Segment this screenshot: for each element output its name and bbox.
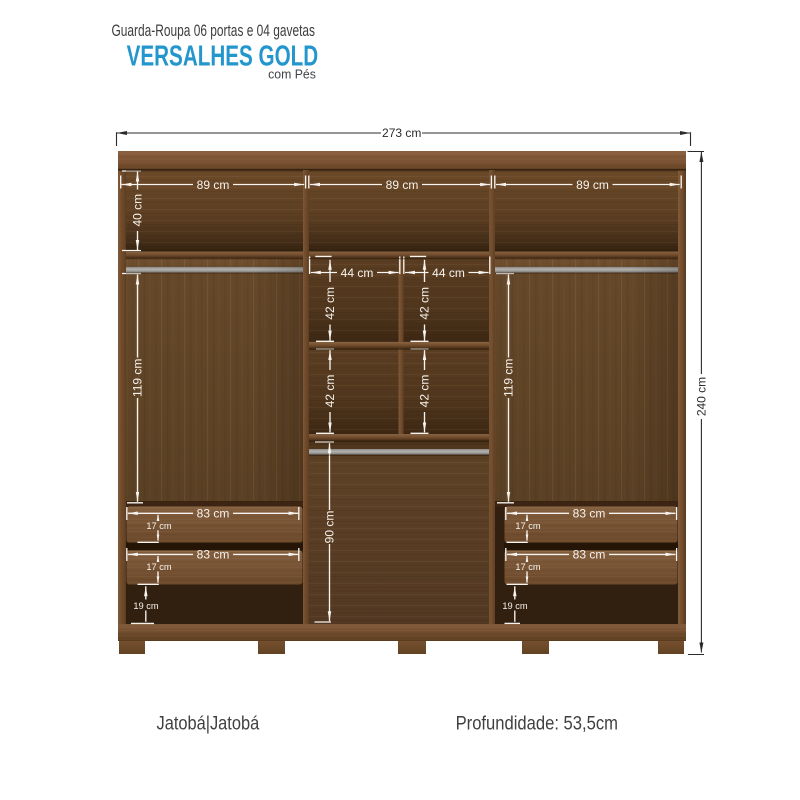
svg-text:42 cm: 42 cm [323, 287, 337, 320]
svg-text:42 cm: 42 cm [418, 375, 432, 408]
svg-text:83 cm: 83 cm [573, 507, 606, 521]
svg-text:119 cm: 119 cm [502, 359, 516, 397]
svg-text:83 cm: 83 cm [197, 548, 230, 562]
svg-text:90 cm: 90 cm [323, 511, 337, 544]
svg-text:44 cm: 44 cm [432, 266, 465, 280]
svg-text:40 cm: 40 cm [131, 194, 145, 227]
svg-text:240 cm: 240 cm [695, 377, 709, 416]
svg-text:17 cm: 17 cm [146, 521, 172, 531]
svg-text:17 cm: 17 cm [515, 521, 541, 531]
svg-text:19 cm: 19 cm [502, 601, 528, 611]
svg-text:44 cm: 44 cm [341, 266, 374, 280]
svg-text:273 cm: 273 cm [382, 126, 421, 140]
svg-text:com Pés: com Pés [268, 67, 316, 81]
svg-text:Jatobá|Jatobá: Jatobá|Jatobá [157, 712, 260, 734]
svg-text:89 cm: 89 cm [576, 178, 609, 192]
svg-text:19 cm: 19 cm [133, 601, 159, 611]
svg-text:83 cm: 83 cm [573, 548, 606, 562]
svg-text:17 cm: 17 cm [146, 562, 172, 572]
svg-text:89 cm: 89 cm [386, 178, 419, 192]
svg-text:42 cm: 42 cm [418, 287, 432, 320]
svg-text:83 cm: 83 cm [197, 507, 230, 521]
svg-text:89 cm: 89 cm [197, 178, 230, 192]
svg-text:Profundidade: 53,5cm: Profundidade: 53,5cm [456, 712, 618, 734]
svg-text:Guarda-Roupa 06 portas e 04 ga: Guarda-Roupa 06 portas e 04 gavetas [112, 21, 316, 40]
svg-text:17 cm: 17 cm [515, 562, 541, 572]
svg-text:42 cm: 42 cm [323, 375, 337, 408]
svg-text:119 cm: 119 cm [131, 359, 145, 397]
